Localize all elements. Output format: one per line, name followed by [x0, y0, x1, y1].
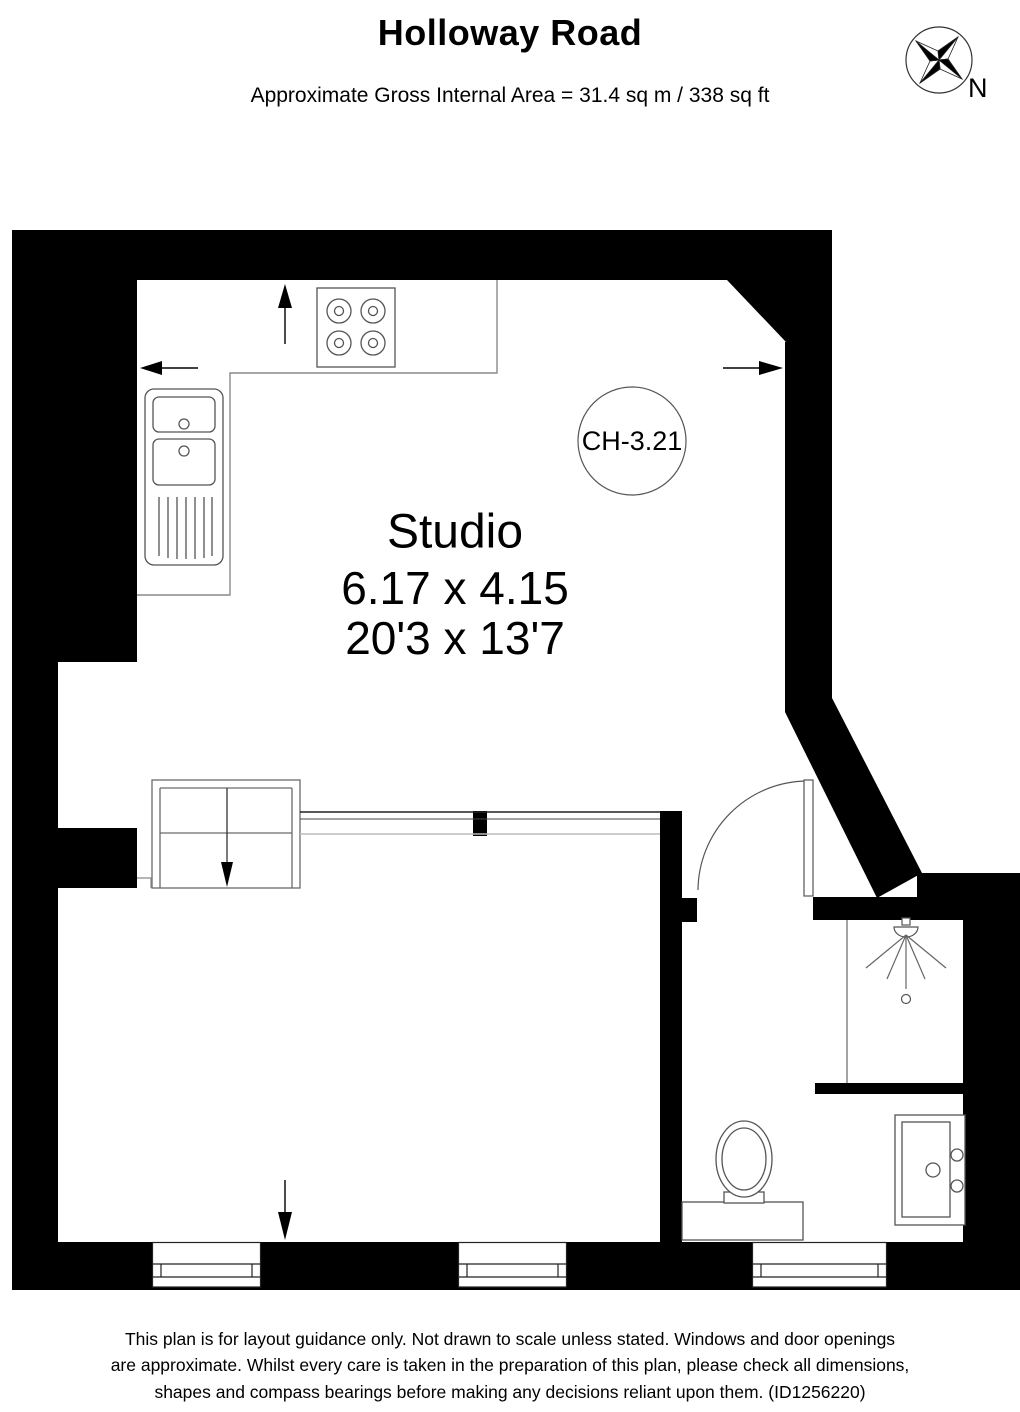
- floor-plan: CH-3.21 Studio 6.17 x 4.15 20'3 x 13'7 N: [0, 0, 1020, 1412]
- kitchen-sink-icon: [145, 389, 223, 565]
- opening-arrow-down-icon: [278, 1180, 292, 1240]
- stairs-down-arrow: [221, 862, 233, 887]
- wall-left-stub: [12, 828, 137, 888]
- hob-icon: [317, 288, 395, 367]
- wall-door-jamb: [682, 898, 697, 922]
- window-icon-middle: [459, 1243, 567, 1288]
- wall-left-upper: [12, 230, 137, 662]
- disclaimer-text: This plan is for layout guidance only. N…: [110, 1326, 910, 1405]
- wall-bath-left: [660, 811, 682, 1242]
- wall-right-vertical: [785, 342, 832, 712]
- wall-top-right-chamfer: [727, 280, 832, 342]
- opening-arrow-right-icon: [723, 361, 783, 375]
- wall-bath-right: [963, 873, 1020, 1290]
- door-leaf: [804, 780, 813, 896]
- window-icon-right: [753, 1243, 887, 1288]
- wall-partition-block: [473, 811, 487, 836]
- room-dimensions-imperial: 20'3 x 13'7: [345, 612, 565, 664]
- room-dimensions-metric: 6.17 x 4.15: [341, 562, 569, 614]
- ceiling-height-label: CH-3.21: [582, 426, 683, 456]
- room-name-label: Studio: [387, 506, 523, 559]
- toilet-icon: [682, 1121, 803, 1240]
- washbasin-icon: [895, 1115, 965, 1225]
- compass-north-label: N: [968, 73, 988, 103]
- opening-arrow-left-icon: [140, 361, 198, 375]
- window-icon-left: [153, 1243, 261, 1288]
- wall-left-lower: [12, 662, 58, 1242]
- ceiling-height-badge: CH-3.21: [578, 387, 686, 495]
- opening-arrows: [140, 284, 783, 1240]
- wall-shower-divider: [815, 1083, 965, 1094]
- compass-icon: N: [906, 27, 988, 103]
- room-labels: Studio 6.17 x 4.15 20'3 x 13'7: [341, 506, 569, 665]
- door-swing-arc: [698, 781, 806, 890]
- door-icon: [698, 780, 813, 896]
- bathroom-area: [682, 918, 965, 1240]
- shower-icon: [847, 918, 946, 1083]
- stairs-icon: [137, 780, 300, 888]
- opening-arrow-up-icon: [278, 284, 292, 344]
